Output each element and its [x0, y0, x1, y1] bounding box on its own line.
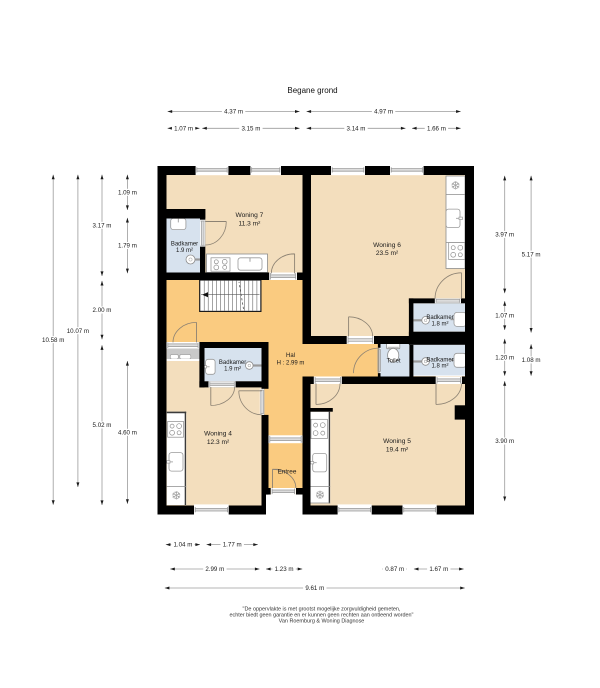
svg-text:Begane grond: Begane grond: [287, 86, 337, 95]
svg-text:H : 2.99 m: H : 2.99 m: [277, 361, 305, 367]
svg-text:1.79 m: 1.79 m: [118, 243, 137, 250]
svg-text:19.4 m²: 19.4 m²: [386, 447, 409, 454]
svg-text:1.23 m: 1.23 m: [275, 566, 294, 573]
svg-text:Badkamer: Badkamer: [219, 360, 246, 366]
svg-text:1.04 m: 1.04 m: [173, 542, 192, 549]
svg-text:5.17 m: 5.17 m: [522, 251, 541, 258]
svg-text:2.99 m: 2.99 m: [205, 566, 224, 573]
svg-text:Hal: Hal: [286, 353, 295, 359]
svg-text:9.61 m: 9.61 m: [305, 585, 324, 592]
svg-text:0.87 m: 0.87 m: [385, 566, 404, 573]
svg-text:4.60 m: 4.60 m: [118, 430, 137, 437]
svg-text:Woning 6: Woning 6: [373, 242, 401, 249]
svg-text:4.97 m: 4.97 m: [374, 109, 393, 116]
svg-text:4.37 m: 4.37 m: [224, 109, 243, 116]
svg-text:Badkamer: Badkamer: [426, 357, 453, 363]
svg-text:1.9 m²: 1.9 m²: [176, 248, 193, 254]
svg-text:5.02 m: 5.02 m: [93, 422, 112, 429]
svg-text:1.66 m: 1.66 m: [427, 125, 446, 132]
svg-text:11.3 m²: 11.3 m²: [238, 220, 261, 227]
svg-text:23.5 m²: 23.5 m²: [376, 250, 399, 257]
svg-text:Woning 5: Woning 5: [383, 438, 411, 445]
svg-text:3.90 m: 3.90 m: [495, 438, 514, 445]
svg-text:2.00 m: 2.00 m: [93, 307, 112, 314]
svg-text:1.67 m: 1.67 m: [429, 566, 448, 573]
svg-text:1.8 m²: 1.8 m²: [431, 363, 448, 369]
svg-text:3.17 m: 3.17 m: [93, 222, 112, 229]
svg-text:1.20 m: 1.20 m: [495, 355, 514, 362]
svg-text:1.8 m²: 1.8 m²: [431, 322, 448, 328]
svg-text:10.58 m: 10.58 m: [42, 337, 64, 344]
svg-text:Badkamer: Badkamer: [426, 315, 453, 321]
svg-text:12.3 m²: 12.3 m²: [207, 439, 230, 446]
svg-text:Entree: Entree: [278, 469, 297, 476]
svg-text:1.77 m: 1.77 m: [223, 542, 242, 549]
svg-text:echter biedt geen garantie en: echter biedt geen garantie en er kunnen …: [230, 612, 414, 618]
svg-text:3.15 m: 3.15 m: [241, 125, 260, 132]
svg-text:Toilet: Toilet: [387, 359, 401, 365]
svg-text:Badkamer: Badkamer: [171, 241, 198, 247]
svg-text:1.09 m: 1.09 m: [118, 189, 137, 196]
svg-text:"De oppervlakte is met grootst: "De oppervlakte is met grootst mogelijke…: [243, 606, 401, 612]
svg-text:1.08 m: 1.08 m: [522, 357, 541, 364]
svg-text:Van Roemburg & Woning Diagnose: Van Roemburg & Woning Diagnose: [279, 619, 365, 625]
svg-text:1.9 m²: 1.9 m²: [224, 366, 241, 372]
svg-text:Woning 4: Woning 4: [204, 430, 232, 437]
svg-text:10.07 m: 10.07 m: [67, 328, 89, 335]
svg-text:1.07 m: 1.07 m: [495, 313, 514, 320]
svg-text:3.97 m: 3.97 m: [495, 232, 514, 239]
svg-text:Woning 7: Woning 7: [236, 212, 264, 219]
svg-text:3.14 m: 3.14 m: [347, 125, 366, 132]
svg-text:1.07 m: 1.07 m: [174, 125, 193, 132]
